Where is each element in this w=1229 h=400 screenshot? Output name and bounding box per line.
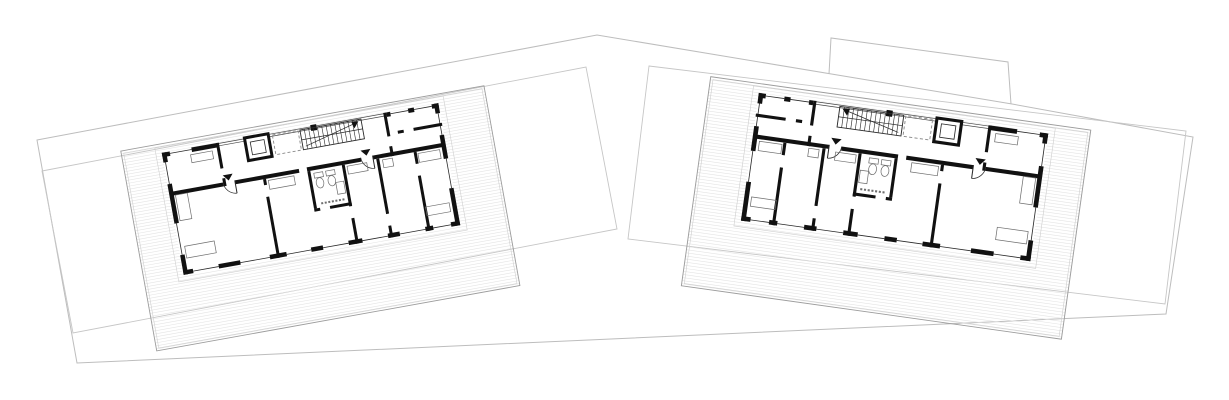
exterior-wall xyxy=(784,97,791,103)
elevator-core xyxy=(244,134,272,161)
elevator-core xyxy=(934,118,962,145)
site-plan-svg xyxy=(0,0,1229,400)
exterior-wall xyxy=(809,100,814,105)
floor-plan-viewport xyxy=(0,0,1229,400)
exterior-wall xyxy=(386,112,391,117)
